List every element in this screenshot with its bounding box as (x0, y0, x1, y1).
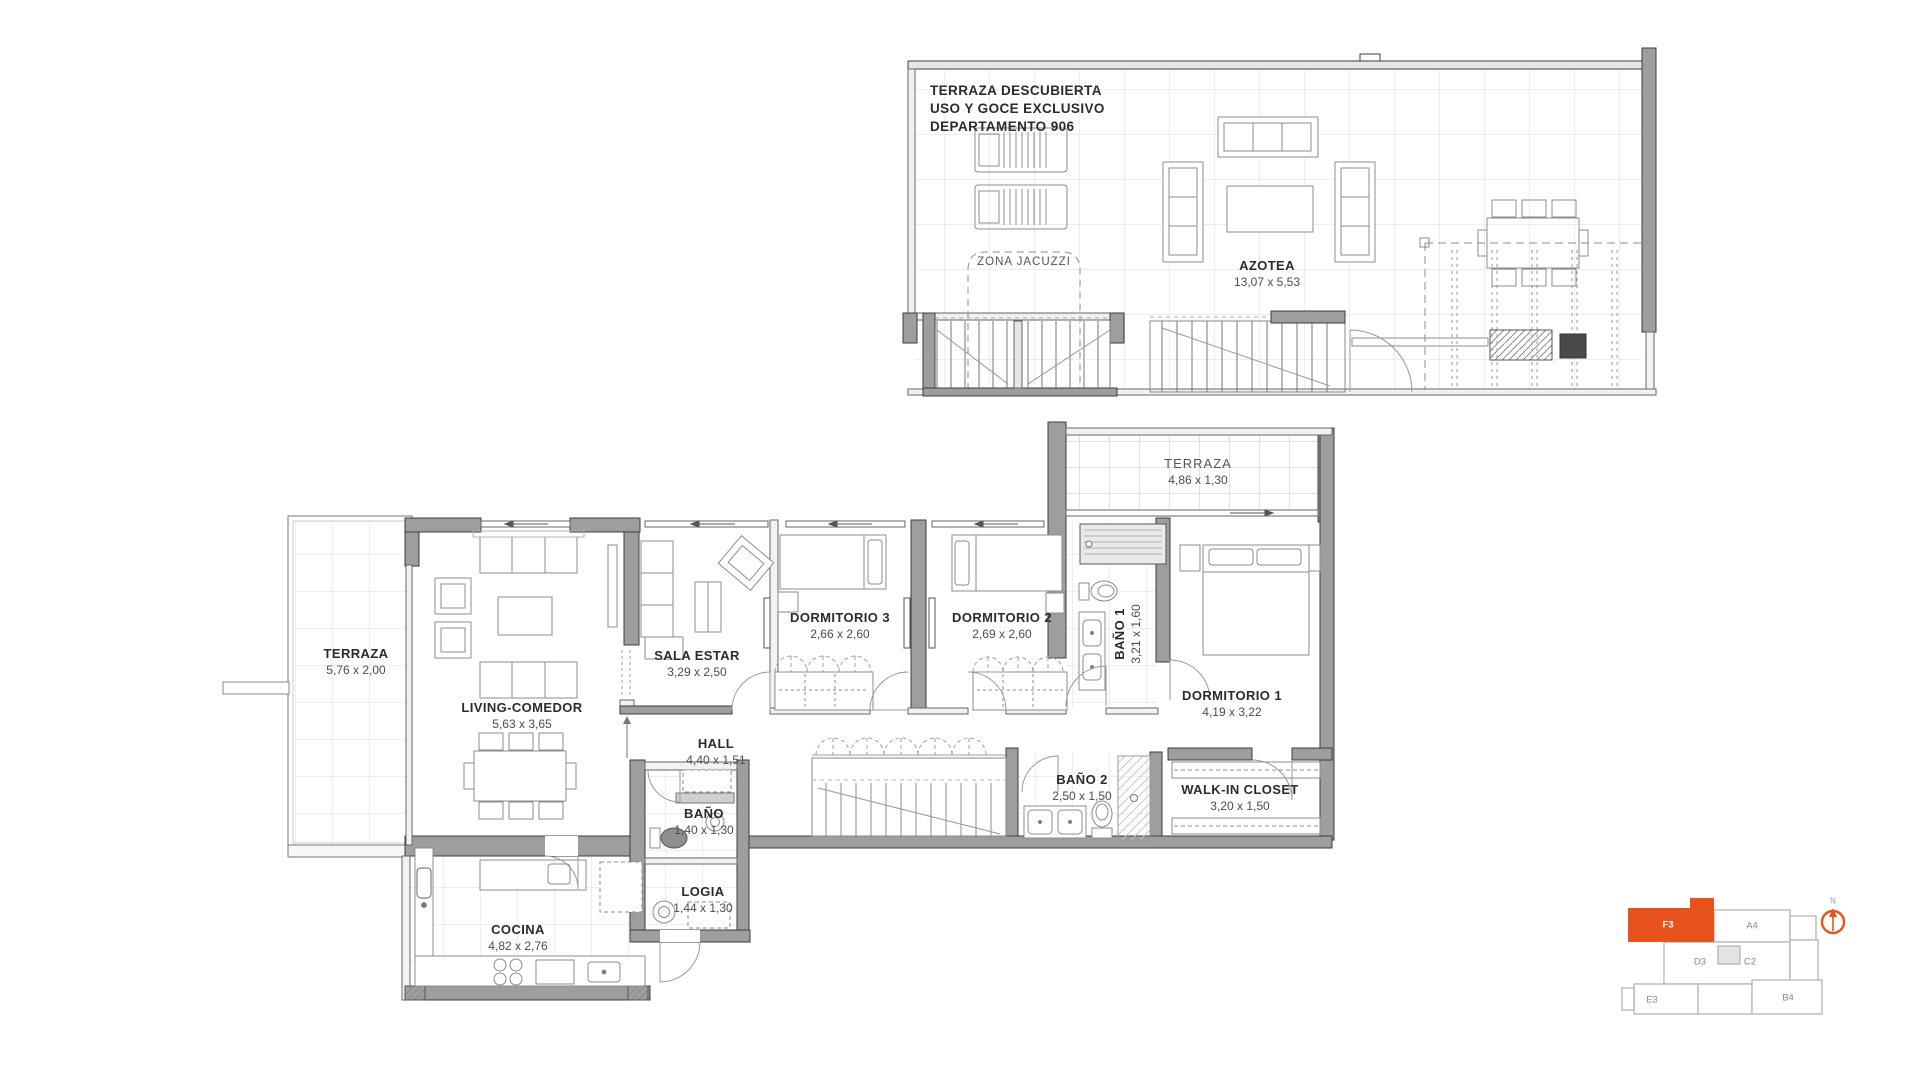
apartment-plan (223, 422, 1334, 1000)
dorm3-furniture (764, 535, 886, 710)
walkin-fixtures (1172, 762, 1320, 834)
roof-title-line-3: DEPARTAMENTO 906 (930, 118, 1105, 136)
north-arrow-icon (1822, 908, 1844, 933)
roof-title-line-2: USO Y GOCE EXCLUSIVO (930, 100, 1105, 118)
key-plan-label-b4: B4 (1782, 993, 1794, 1004)
key-plan-label-e3: E3 (1646, 995, 1658, 1006)
interior-stair (812, 738, 1006, 836)
terrace-left (223, 516, 412, 857)
dorm1-furniture (1180, 545, 1320, 655)
living-furniture (435, 531, 630, 819)
key-plan-label-f3[interactable]: F3 (1662, 920, 1673, 931)
roof-title-line-1: TERRAZA DESCUBIERTA (930, 82, 1105, 100)
terrace-top-floor (1066, 435, 1318, 512)
roof-grill (1490, 330, 1586, 360)
key-plan-label-a4: A4 (1746, 921, 1758, 932)
jacuzzi-zone-label: ZONA JACUZZI (977, 256, 1071, 268)
roof-title-block: TERRAZA DESCUBIERTA USO Y GOCE EXCLUSIVO… (930, 82, 1105, 137)
key-plan-label-d3: D3 (1694, 957, 1706, 968)
sala-furniture (641, 536, 774, 659)
dorm2-furniture (904, 535, 1067, 710)
key-plan-label-c2: C2 (1744, 957, 1756, 968)
north-label: N (1830, 897, 1836, 906)
floor-plan-sheet: TERRAZA DESCUBIERTA USO Y GOCE EXCLUSIVO… (0, 0, 1920, 1080)
plan-linework (0, 0, 1920, 1080)
